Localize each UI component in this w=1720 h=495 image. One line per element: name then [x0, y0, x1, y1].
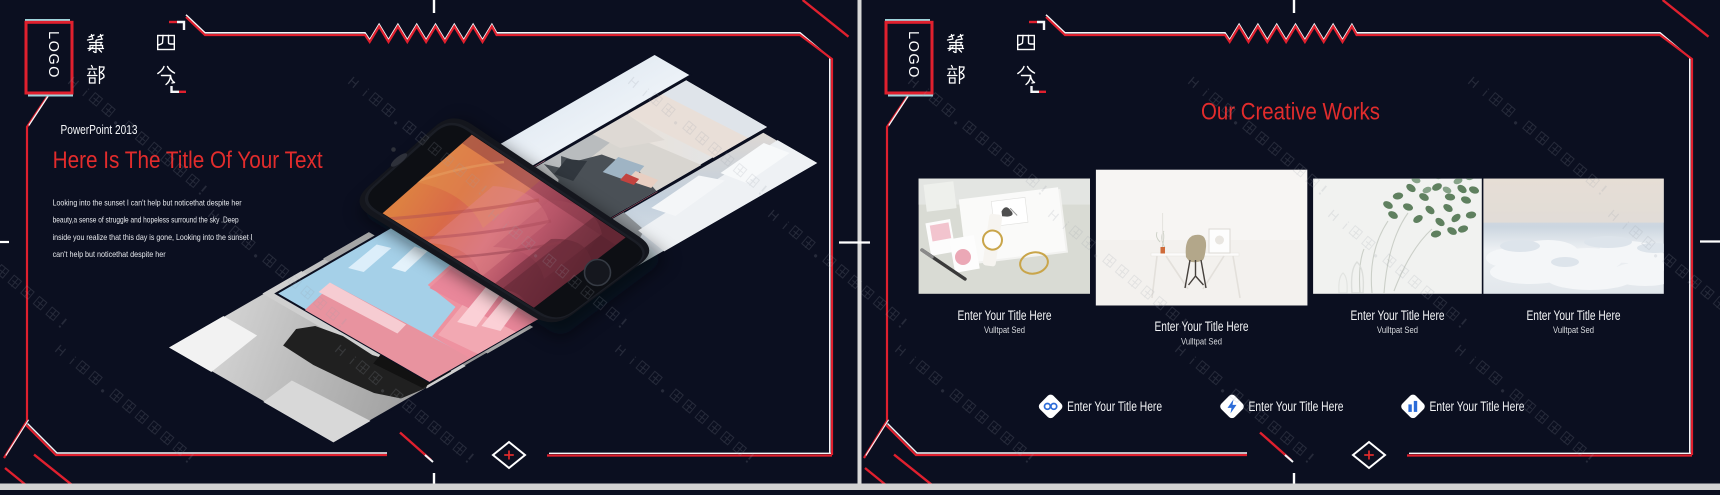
svg-text:Enter Your Title Here: Enter Your Title Here: [1155, 319, 1249, 334]
svg-text:Vulltpat Sed: Vulltpat Sed: [1377, 325, 1418, 335]
svg-text:Vulltpat Sed: Vulltpat Sed: [1553, 325, 1594, 335]
svg-text:Enter Your Title Here: Enter Your Title Here: [1351, 308, 1445, 323]
svg-text:LOGO: LOGO: [905, 31, 921, 79]
svg-text:Enter Your Title Here: Enter Your Title Here: [958, 308, 1052, 323]
svg-text:Here Is The Title Of Your Text: Here Is The Title Of Your Text: [53, 147, 323, 174]
svg-text:Enter Your Title Here: Enter Your Title Here: [1067, 399, 1162, 414]
svg-text:Looking into the sunset I ca: Looking into the sunset I can't help but…: [53, 199, 242, 208]
svg-text:can't help but noticethat des: can't help but noticethat despite her: [53, 250, 166, 259]
svg-text:Enter Your Title Here: Enter Your Title Here: [1527, 308, 1621, 323]
svg-text:Enter Your Title Here: Enter Your Title Here: [1430, 399, 1525, 414]
svg-text:Vulltpat Sed: Vulltpat Sed: [984, 325, 1025, 335]
svg-text:LOGO: LOGO: [45, 31, 61, 79]
svg-text:inside you realize that this d: inside you realize that this day is gone…: [53, 233, 253, 242]
